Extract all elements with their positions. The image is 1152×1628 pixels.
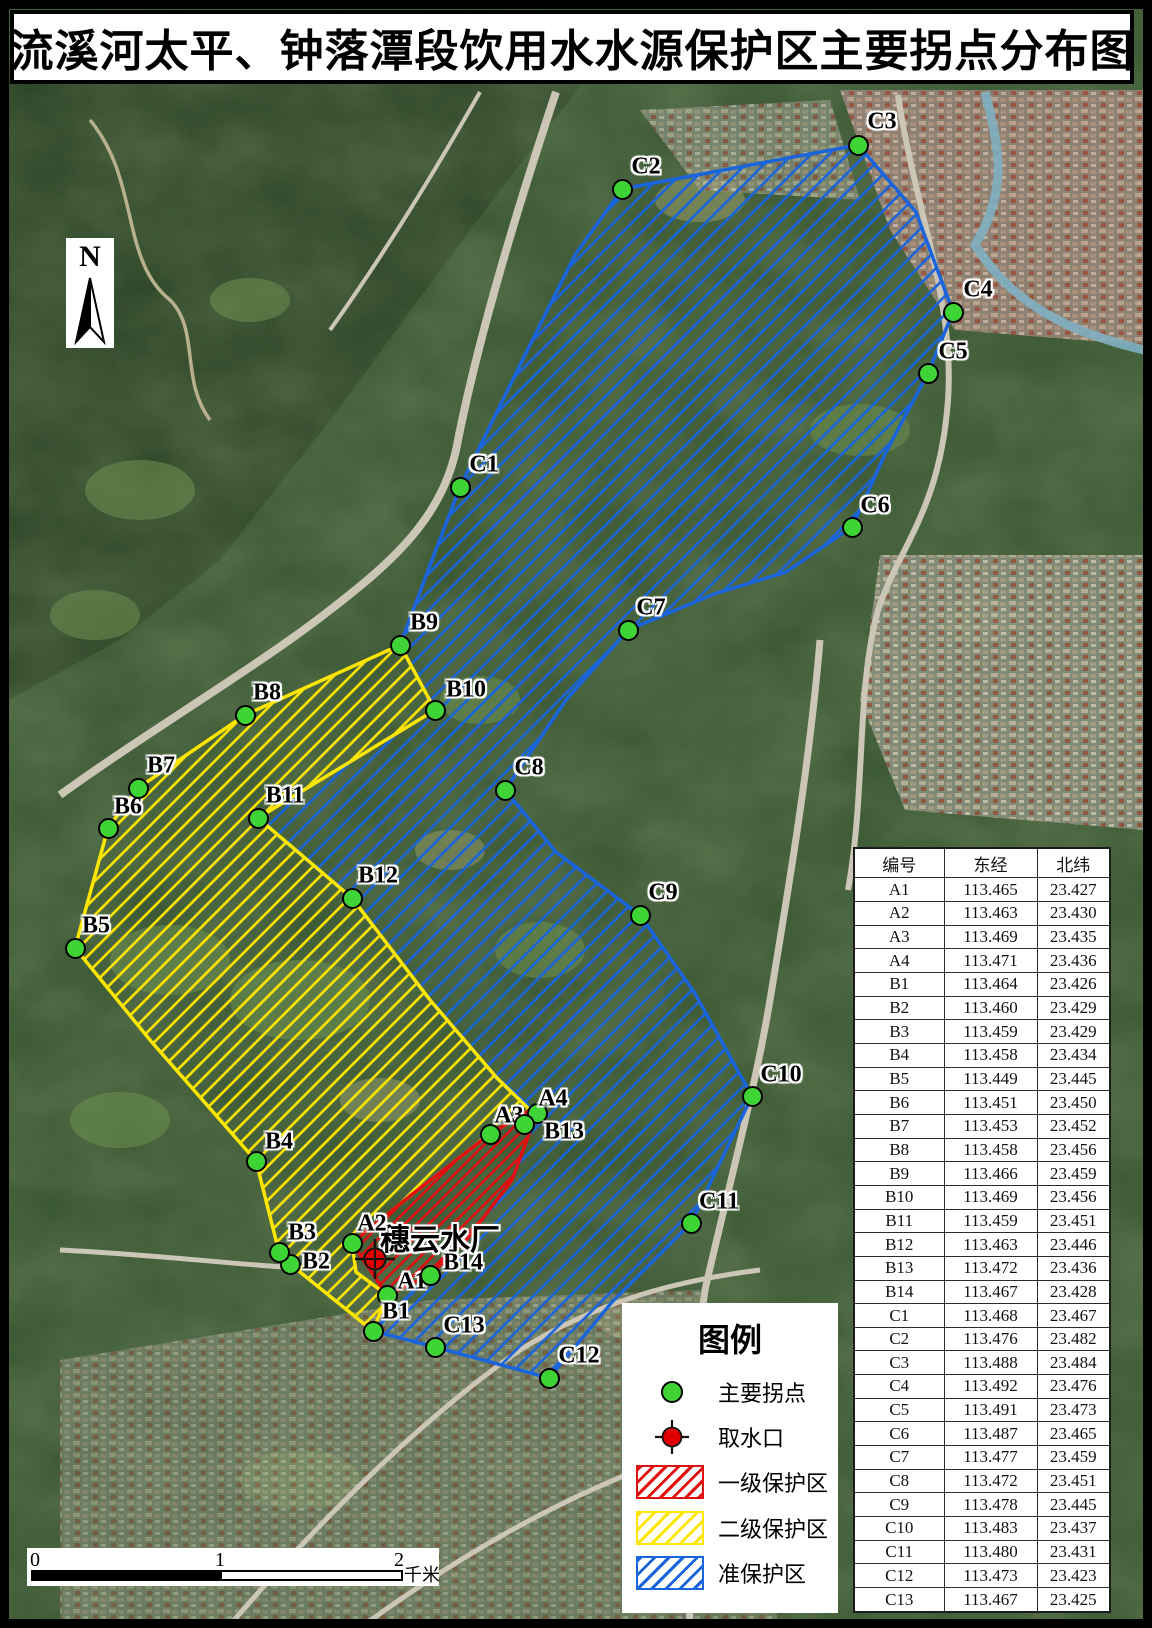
table-cell: 23.473	[1037, 1398, 1110, 1422]
table-cell: 23.427	[1037, 878, 1110, 902]
table-cell: 113.472	[944, 1256, 1037, 1280]
table-cell: B6	[854, 1091, 944, 1115]
table-row: B11113.45923.451	[854, 1209, 1110, 1233]
table-row: B1113.46423.426	[854, 972, 1110, 996]
table-cell: B12	[854, 1233, 944, 1257]
table-cell: C3	[854, 1351, 944, 1375]
table-row: C6113.48723.465	[854, 1422, 1110, 1446]
page-title: 流溪河太平、钟落潭段饮用水水源保护区主要拐点分布图	[10, 15, 1135, 79]
table-cell: 23.452	[1037, 1114, 1110, 1138]
table-cell: 23.484	[1037, 1351, 1110, 1375]
title-bar: 流溪河太平、钟落潭段饮用水水源保护区主要拐点分布图	[10, 10, 1134, 84]
table-cell: 113.483	[944, 1517, 1037, 1541]
table-cell: 23.459	[1037, 1162, 1110, 1186]
table-cell: 113.464	[944, 972, 1037, 996]
table-header-row: 编号东经北纬	[854, 848, 1110, 878]
table-cell: 23.436	[1037, 949, 1110, 973]
table-header-cell: 编号	[854, 848, 944, 878]
table-row: B12113.46323.446	[854, 1233, 1110, 1257]
table-cell: B13	[854, 1256, 944, 1280]
table-cell: 113.480	[944, 1540, 1037, 1564]
table-row: B14113.46723.428	[854, 1280, 1110, 1304]
legend-secondary-zone-swatch	[636, 1511, 704, 1545]
table-cell: 23.426	[1037, 972, 1110, 996]
legend-buffer-zone-swatch	[636, 1556, 704, 1590]
table-row: C7113.47723.459	[854, 1446, 1110, 1470]
table-cell: B5	[854, 1067, 944, 1091]
table-row: A1113.46523.427	[854, 878, 1110, 902]
table-cell: 113.458	[944, 1138, 1037, 1162]
table-cell: 113.492	[944, 1375, 1037, 1399]
north-label: N	[66, 240, 114, 274]
table-row: C4113.49223.476	[854, 1375, 1110, 1399]
scale-tick-0: 0	[30, 1549, 40, 1572]
table-cell: 113.453	[944, 1114, 1037, 1138]
table-cell: A2	[854, 902, 944, 926]
table-row: B9113.46623.459	[854, 1162, 1110, 1186]
table-cell: 113.459	[944, 1209, 1037, 1233]
table-cell: 23.451	[1037, 1209, 1110, 1233]
table-row: A3113.46923.435	[854, 925, 1110, 949]
table-cell: C2	[854, 1327, 944, 1351]
legend-buffer-zone-label: 准保护区	[718, 1557, 806, 1589]
table-cell: 113.488	[944, 1351, 1037, 1375]
table-row: C11113.48023.431	[854, 1540, 1110, 1564]
table-cell: A1	[854, 878, 944, 902]
table-cell: 113.465	[944, 878, 1037, 902]
table-cell: 113.449	[944, 1067, 1037, 1091]
table-cell: 23.456	[1037, 1138, 1110, 1162]
table-cell: 23.451	[1037, 1469, 1110, 1493]
table-cell: 113.467	[944, 1280, 1037, 1304]
table-cell: C7	[854, 1446, 944, 1470]
table-cell: 23.428	[1037, 1280, 1110, 1304]
table-row: C2113.47623.482	[854, 1327, 1110, 1351]
table-cell: 113.467	[944, 1588, 1037, 1612]
legend-intake-label: 取水口	[718, 1421, 784, 1453]
table-cell: B11	[854, 1209, 944, 1233]
scale-bar-graphic	[31, 1570, 403, 1581]
table-cell: 23.423	[1037, 1564, 1110, 1588]
table-cell: 23.446	[1037, 1233, 1110, 1257]
table-row: B8113.45823.456	[854, 1138, 1110, 1162]
table-cell: B4	[854, 1043, 944, 1067]
table-cell: C5	[854, 1398, 944, 1422]
table-row: C12113.47323.423	[854, 1564, 1110, 1588]
table-cell: 23.425	[1037, 1588, 1110, 1612]
scale-tick-2: 2	[394, 1549, 404, 1572]
table-header-cell: 北纬	[1037, 848, 1110, 878]
table-cell: 23.445	[1037, 1493, 1110, 1517]
table-cell: 113.487	[944, 1422, 1037, 1446]
table-cell: 113.476	[944, 1327, 1037, 1351]
north-arrow: N	[66, 238, 114, 348]
table-row: B6113.45123.450	[854, 1091, 1110, 1115]
table-cell: 23.445	[1037, 1067, 1110, 1091]
scale-tick-1: 1	[215, 1549, 225, 1572]
legend: 图例 主要拐点 取水口 一级保护区 二级保护区 准保护区	[622, 1303, 838, 1613]
map-sheet: 流溪河太平、钟落潭段饮用水水源保护区主要拐点分布图 N 穗云水厂 A1A2A3A…	[0, 0, 1152, 1628]
table-cell: C8	[854, 1469, 944, 1493]
table-cell: B7	[854, 1114, 944, 1138]
table-row: B4113.45823.434	[854, 1043, 1110, 1067]
intake-crosshair-icon	[655, 1420, 689, 1454]
table-row: C3113.48823.484	[854, 1351, 1110, 1375]
table-cell: 23.435	[1037, 925, 1110, 949]
table-cell: 23.430	[1037, 902, 1110, 926]
table-cell: B9	[854, 1162, 944, 1186]
table-cell: B2	[854, 996, 944, 1020]
table-cell: 113.469	[944, 925, 1037, 949]
table-row: B13113.47223.436	[854, 1256, 1110, 1280]
table-cell: B1	[854, 972, 944, 996]
legend-secondary-zone-label: 二级保护区	[718, 1512, 828, 1544]
legend-primary-zone-label: 一级保护区	[718, 1466, 828, 1498]
table-row: B2113.46023.429	[854, 996, 1110, 1020]
table-cell: 113.468	[944, 1304, 1037, 1328]
urban-area-east	[860, 555, 1144, 830]
table-row: C1113.46823.467	[854, 1304, 1110, 1328]
table-row: B3113.45923.429	[854, 1020, 1110, 1044]
table-cell: 23.465	[1037, 1422, 1110, 1446]
table-row: C10113.48323.437	[854, 1517, 1110, 1541]
table-cell: 23.467	[1037, 1304, 1110, 1328]
table-cell: 113.466	[944, 1162, 1037, 1186]
table-cell: 113.491	[944, 1398, 1037, 1422]
legend-intake-icon	[655, 1420, 689, 1459]
table-cell: 23.450	[1037, 1091, 1110, 1115]
table-cell: 113.463	[944, 902, 1037, 926]
table-cell: B8	[854, 1138, 944, 1162]
table-cell: C11	[854, 1540, 944, 1564]
legend-point-label: 主要拐点	[718, 1376, 806, 1408]
table-cell: B14	[854, 1280, 944, 1304]
table-cell: A4	[854, 949, 944, 973]
table-cell: C1	[854, 1304, 944, 1328]
table-cell: 23.459	[1037, 1446, 1110, 1470]
legend-title: 图例	[622, 1315, 838, 1361]
table-cell: 23.429	[1037, 996, 1110, 1020]
table-cell: 23.431	[1037, 1540, 1110, 1564]
table-cell: 113.458	[944, 1043, 1037, 1067]
table-cell: 23.476	[1037, 1375, 1110, 1399]
scale-unit: 千米	[404, 1561, 440, 1587]
coord-table: 编号东经北纬A1113.46523.427A2113.46323.430A311…	[853, 847, 1111, 1613]
table-row: C8113.47223.451	[854, 1469, 1110, 1493]
table-cell: 113.463	[944, 1233, 1037, 1257]
table-cell: 113.478	[944, 1493, 1037, 1517]
table-row: A4113.47123.436	[854, 949, 1110, 973]
table-row: C13113.46723.425	[854, 1588, 1110, 1612]
table-row: C9113.47823.445	[854, 1493, 1110, 1517]
legend-primary-zone-swatch	[636, 1465, 704, 1499]
coord-table-body: 编号东经北纬A1113.46523.427A2113.46323.430A311…	[854, 848, 1110, 1612]
table-cell: 113.472	[944, 1469, 1037, 1493]
table-cell: 23.456	[1037, 1185, 1110, 1209]
scale-segment-filled	[31, 1570, 220, 1581]
table-row: C5113.49123.473	[854, 1398, 1110, 1422]
scale-bar: 0 1 2 千米	[27, 1548, 439, 1586]
table-cell: C4	[854, 1375, 944, 1399]
table-row: A2113.46323.430	[854, 902, 1110, 926]
table-cell: C6	[854, 1422, 944, 1446]
table-cell: 23.434	[1037, 1043, 1110, 1067]
table-cell: 113.473	[944, 1564, 1037, 1588]
table-cell: C10	[854, 1517, 944, 1541]
table-cell: A3	[854, 925, 944, 949]
table-cell: C13	[854, 1588, 944, 1612]
table-row: B5113.44923.445	[854, 1067, 1110, 1091]
table-cell: 113.471	[944, 949, 1037, 973]
table-cell: C12	[854, 1564, 944, 1588]
table-cell: C9	[854, 1493, 944, 1517]
table-cell: 23.482	[1037, 1327, 1110, 1351]
table-cell: 23.436	[1037, 1256, 1110, 1280]
legend-point-icon	[661, 1381, 683, 1403]
table-cell: 113.460	[944, 996, 1037, 1020]
table-cell: B3	[854, 1020, 944, 1044]
scale-segment-hollow	[220, 1570, 403, 1581]
table-cell: 113.451	[944, 1091, 1037, 1115]
table-cell: 113.459	[944, 1020, 1037, 1044]
table-header-cell: 东经	[944, 848, 1037, 878]
table-cell: B10	[854, 1185, 944, 1209]
table-cell: 113.469	[944, 1185, 1037, 1209]
table-cell: 113.477	[944, 1446, 1037, 1470]
table-cell: 23.429	[1037, 1020, 1110, 1044]
table-row: B7113.45323.452	[854, 1114, 1110, 1138]
table-row: B10113.46923.456	[854, 1185, 1110, 1209]
table-cell: 23.437	[1037, 1517, 1110, 1541]
